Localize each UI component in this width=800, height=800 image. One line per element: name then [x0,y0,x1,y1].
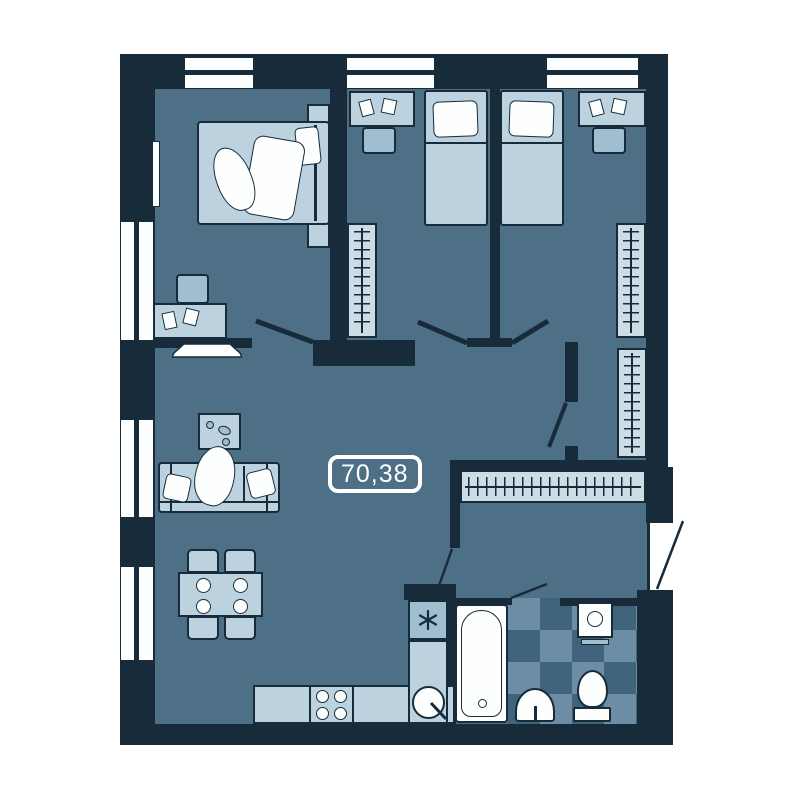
decor-item [206,421,214,429]
wall-hall-block [313,340,415,366]
wall-right-upper [646,54,668,467]
dining-chair [187,549,219,573]
wall-closet-upper [565,342,578,402]
burner [334,707,347,720]
wardrobe-bedroom2 [347,223,377,338]
area-label: 70,38 [328,455,422,493]
washer-drum [587,611,603,627]
door-leaf-entrance [657,521,683,589]
wardrobe-closet [617,348,647,458]
dining-table [178,572,263,617]
bed-fold-line [426,142,486,144]
burner [316,707,329,720]
floor-plan: 70,38 [0,0,800,800]
washer-ledge [581,639,609,645]
bed-fold-line [502,142,562,144]
decor-item [217,424,232,437]
plate [196,599,211,614]
sofa-pillow [162,473,193,504]
tv-icon [172,343,242,359]
wall-above-coat-rack [450,460,657,470]
washing-machine [577,602,613,638]
wall-master-right [330,88,347,340]
wall-bottom [120,724,673,745]
basin-stem [534,706,537,722]
wall-doors-stub [467,338,512,347]
window-mullion [134,222,139,340]
desk-chair-bedroom3 [592,127,626,154]
window-top-1 [185,58,253,88]
wall-hall-divider [450,460,460,548]
window-mullion [134,567,139,660]
burner [316,690,329,703]
dining-chair [187,616,219,640]
bathtub-drain [478,699,487,708]
wall-right-lower [637,590,673,724]
dining-chair [224,549,256,573]
window-left-3 [121,567,153,660]
window-left-2 [121,420,153,517]
window-mullion [347,70,434,75]
sofa-seat-divider [243,466,245,502]
coffee-table [198,413,241,450]
window-mullion [547,70,638,75]
window-mullion [134,420,139,517]
bathtub [455,604,508,723]
wall-right-block [646,467,673,523]
dining-chair [224,616,256,640]
stove [309,685,354,724]
kitchen-sink [412,686,445,719]
window-top-2 [347,58,434,88]
plate [196,578,211,593]
toilet-base [573,707,611,722]
entry-threshold [647,523,650,590]
fridge [408,600,448,640]
wardrobe-bedroom3 [616,223,646,338]
window-top-3 [547,58,638,88]
desk-chair-bedroom2 [362,127,396,154]
desk-chair-master [176,274,209,304]
wall-bedrooms-divider [490,88,500,342]
bed-pillow [508,100,554,138]
burner [334,690,347,703]
mirror [152,141,160,207]
nightstand-bottom [307,222,330,248]
coat-rack-hall [460,470,646,503]
fridge-asterisk-icon [417,609,439,631]
plate [233,599,248,614]
toilet-bowl [577,670,608,708]
window-left-1 [121,222,153,340]
window-mullion [185,70,253,75]
bed-pillow [432,100,478,138]
decor-item [222,438,230,446]
plate [233,578,248,593]
